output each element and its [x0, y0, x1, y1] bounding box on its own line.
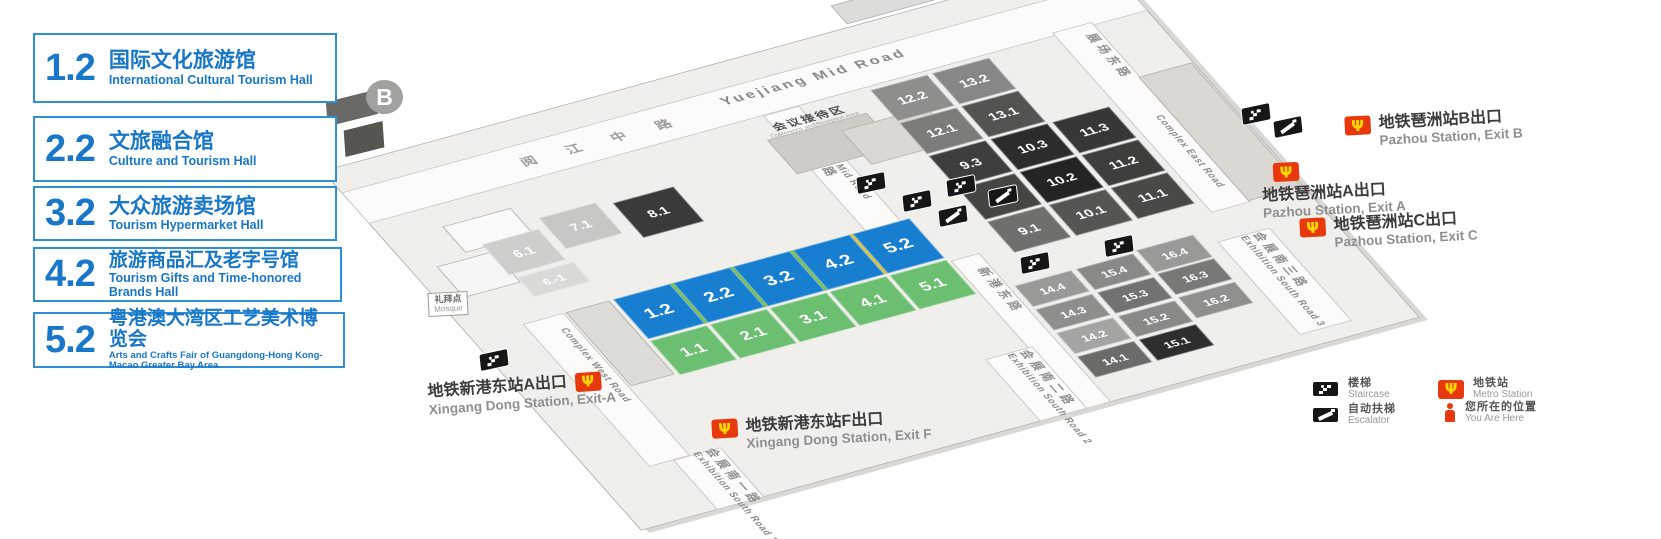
hall-number-label: 9.3: [956, 156, 985, 172]
hall-number-label: 16.2: [1200, 292, 1232, 308]
hall-title-en: Arts and Crafts Fair of Guangdong-Hong K…: [109, 351, 333, 372]
hall-number-label: 4.2: [819, 252, 858, 273]
hall-code: 4.2: [45, 253, 95, 296]
hall-number-label: 3.2: [759, 268, 798, 289]
hall-number-label: 7.1: [566, 218, 595, 234]
escalator-icon: [1272, 115, 1303, 139]
map-fragment: [344, 121, 385, 157]
you-are-here-icon: [1444, 403, 1456, 423]
hall-title-zh: 旅游商品汇及老字号馆: [109, 250, 330, 271]
hall-number-label: 13.2: [956, 72, 993, 90]
hall-title-en: International Cultural Tourism Hall: [109, 73, 313, 87]
hall-number-label: 12.1: [923, 122, 960, 140]
mosque-label: 礼拜点 Mosque: [427, 291, 469, 317]
hall-number-label: 15.2: [1140, 311, 1172, 327]
hall-code: 1.2: [45, 47, 95, 90]
hall-number-label: 10.1: [1072, 203, 1109, 221]
hall-number-label: 15.4: [1098, 264, 1130, 280]
hall-title-en: Culture and Tourism Hall: [109, 154, 257, 168]
hall-title-zh: 粤港澳大湾区工艺美术博览会: [109, 308, 333, 351]
hall-title-zh: 文旅融合馆: [109, 130, 257, 154]
key-item-escalator: 自动扶梯 Escalator: [1312, 404, 1396, 426]
station-pazhou-exit-b: Ψ 地铁琶洲站B出口 Pazhou Station, Exit B: [1344, 107, 1523, 150]
hall-code: 2.2: [45, 128, 95, 171]
legend-panel-hall-1-2: 1.2 国际文化旅游馆 International Cultural Touri…: [33, 33, 337, 103]
hall-number-label: 10.2: [1043, 171, 1080, 189]
hall-number-label: 1.1: [676, 340, 711, 360]
hall-number-label: 6.-1: [539, 272, 569, 287]
hall-number-label: 10.3: [1014, 138, 1051, 156]
hall-number-label: 11.2: [1105, 154, 1141, 172]
hall-number-label: 13.1: [985, 105, 1022, 123]
hall-number-label: 2.1: [736, 324, 771, 344]
hall-title-en: Tourism Gifts and Time-honored Brands Ha…: [109, 271, 330, 299]
hall-number-label: 11.1: [1134, 187, 1170, 205]
exhibition-map-canvas: Yuejiang Mid Road 阅 江 中 路 Complex Mid Ro…: [0, 0, 1661, 539]
hall-number-label: 3.1: [796, 308, 831, 328]
hall-number-label: 12.2: [894, 89, 931, 107]
metro-station-icon: Ψ: [1438, 380, 1464, 399]
hall-number-label: 8.1: [644, 204, 673, 220]
key-item-you-are-here: 您所在的位置 You Are Here: [1444, 402, 1537, 424]
hall-number-label: 14.2: [1078, 328, 1110, 344]
hall-number-label: 5.1: [915, 275, 950, 295]
area-b-marker: B: [366, 80, 403, 114]
hall-number-label: 11.3: [1076, 121, 1112, 139]
hall-number-label: 6.1: [509, 244, 538, 260]
hall-number-label: 14.1: [1099, 351, 1131, 367]
hall-number-label: 14.4: [1036, 281, 1068, 297]
hall-number-label: 5.2: [879, 235, 918, 256]
key-item-staircase: 楼梯 Staircase: [1312, 378, 1390, 400]
hall-number-label: 14.3: [1057, 304, 1089, 320]
isometric-map-plane: Yuejiang Mid Road 阅 江 中 路 Complex Mid Ro…: [322, 0, 1420, 531]
metro-station-icon: Ψ: [1273, 162, 1300, 182]
escalator-icon: [1312, 407, 1339, 423]
hall-number-label: 16.4: [1158, 246, 1190, 262]
hall-number-label: 15.1: [1160, 334, 1192, 350]
metro-station-icon: Ψ: [1344, 115, 1371, 135]
hall-code: 3.2: [45, 192, 95, 235]
staircase-icon: [1240, 102, 1271, 126]
hall-number-label: 9.1: [1015, 221, 1044, 237]
hall-title-zh: 国际文化旅游馆: [109, 49, 313, 73]
key-item-metro-station: Ψ 地铁站 Metro Station: [1438, 378, 1532, 400]
hall-title-zh: 大众旅游卖场馆: [109, 195, 264, 219]
metro-station-icon: Ψ: [574, 371, 601, 392]
hall-number-label: 4.1: [855, 291, 890, 311]
metro-station-icon: Ψ: [711, 418, 738, 438]
station-pazhou-exit-a: Ψ 地铁琶洲站A出口 Pazhou Station, Exit A: [1261, 156, 1407, 221]
legend-panel-hall-5-2: 5.2 粤港澳大湾区工艺美术博览会 Arts and Crafts Fair o…: [33, 312, 345, 368]
hall-number-label: 15.3: [1119, 287, 1151, 303]
legend-panel-hall-3-2: 3.2 大众旅游卖场馆 Tourism Hypermarket Hall: [33, 186, 337, 241]
hall-number-label: 16.3: [1179, 269, 1211, 285]
metro-station-icon: Ψ: [1299, 217, 1326, 237]
hall-title-en: Tourism Hypermarket Hall: [109, 218, 264, 232]
hall-number-label: 1.2: [640, 301, 679, 322]
legend-panel-hall-2-2: 2.2 文旅融合馆 Culture and Tourism Hall: [33, 116, 337, 182]
hall-number-label: 2.2: [699, 284, 738, 305]
staircase-icon: [1312, 381, 1339, 397]
legend-panel-hall-4-2: 4.2 旅游商品汇及老字号馆 Tourism Gifts and Time-ho…: [33, 247, 342, 302]
hall-code: 5.2: [45, 319, 95, 362]
